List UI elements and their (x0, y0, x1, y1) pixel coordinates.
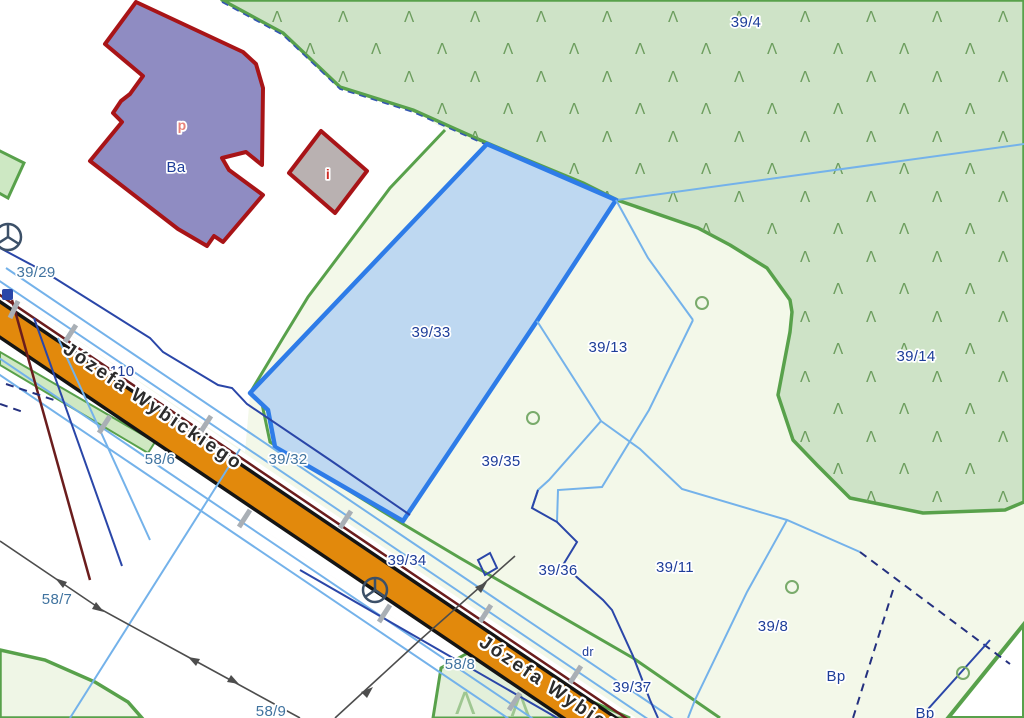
parcel-label-39-8[interactable]: 39/8 (758, 618, 788, 635)
map-stage: Λ Λ Λ Λ Λ (0, 0, 1024, 718)
building-label-i: i (326, 166, 330, 182)
land-use-label-bp2: Bp (916, 705, 935, 718)
parcel-label-58-9[interactable]: 58/9 (256, 703, 286, 718)
land-use-label-dr: dr (582, 645, 594, 659)
parcel-label-39-4[interactable]: 39/4 (731, 14, 761, 31)
parcel-label-39-34[interactable]: 39/34 (387, 552, 426, 569)
parcel-label-39-36[interactable]: 39/36 (538, 562, 577, 579)
parcel-label-39-13[interactable]: 39/13 (588, 339, 627, 356)
building-label-p: p (178, 117, 187, 133)
cadastral-map[interactable]: Λ Λ Λ Λ Λ (0, 0, 1024, 718)
parcel-label-39-37[interactable]: 39/37 (612, 679, 651, 696)
parcel-label-58-7[interactable]: 58/7 (42, 591, 72, 608)
parcel-label-39-29[interactable]: 39/29 (16, 264, 55, 281)
land-use-label-bp: Bp (827, 668, 846, 685)
map-marker-square (2, 289, 13, 300)
tree-icon: Λ (455, 687, 476, 718)
parcel-label-39-14[interactable]: 39/14 (896, 348, 935, 365)
parcel-label-39-33[interactable]: 39/33 (411, 324, 450, 341)
parcel-label-39-32[interactable]: 39/32 (268, 451, 307, 468)
parcel-label-39-35[interactable]: 39/35 (481, 453, 520, 470)
parcel-label-39-11[interactable]: 39/11 (656, 559, 694, 576)
parcel-label-58-8[interactable]: 58/8 (445, 656, 475, 673)
parcel-label-58-6[interactable]: 58/6 (145, 451, 175, 468)
land-use-label-ba: Ba (167, 159, 186, 176)
